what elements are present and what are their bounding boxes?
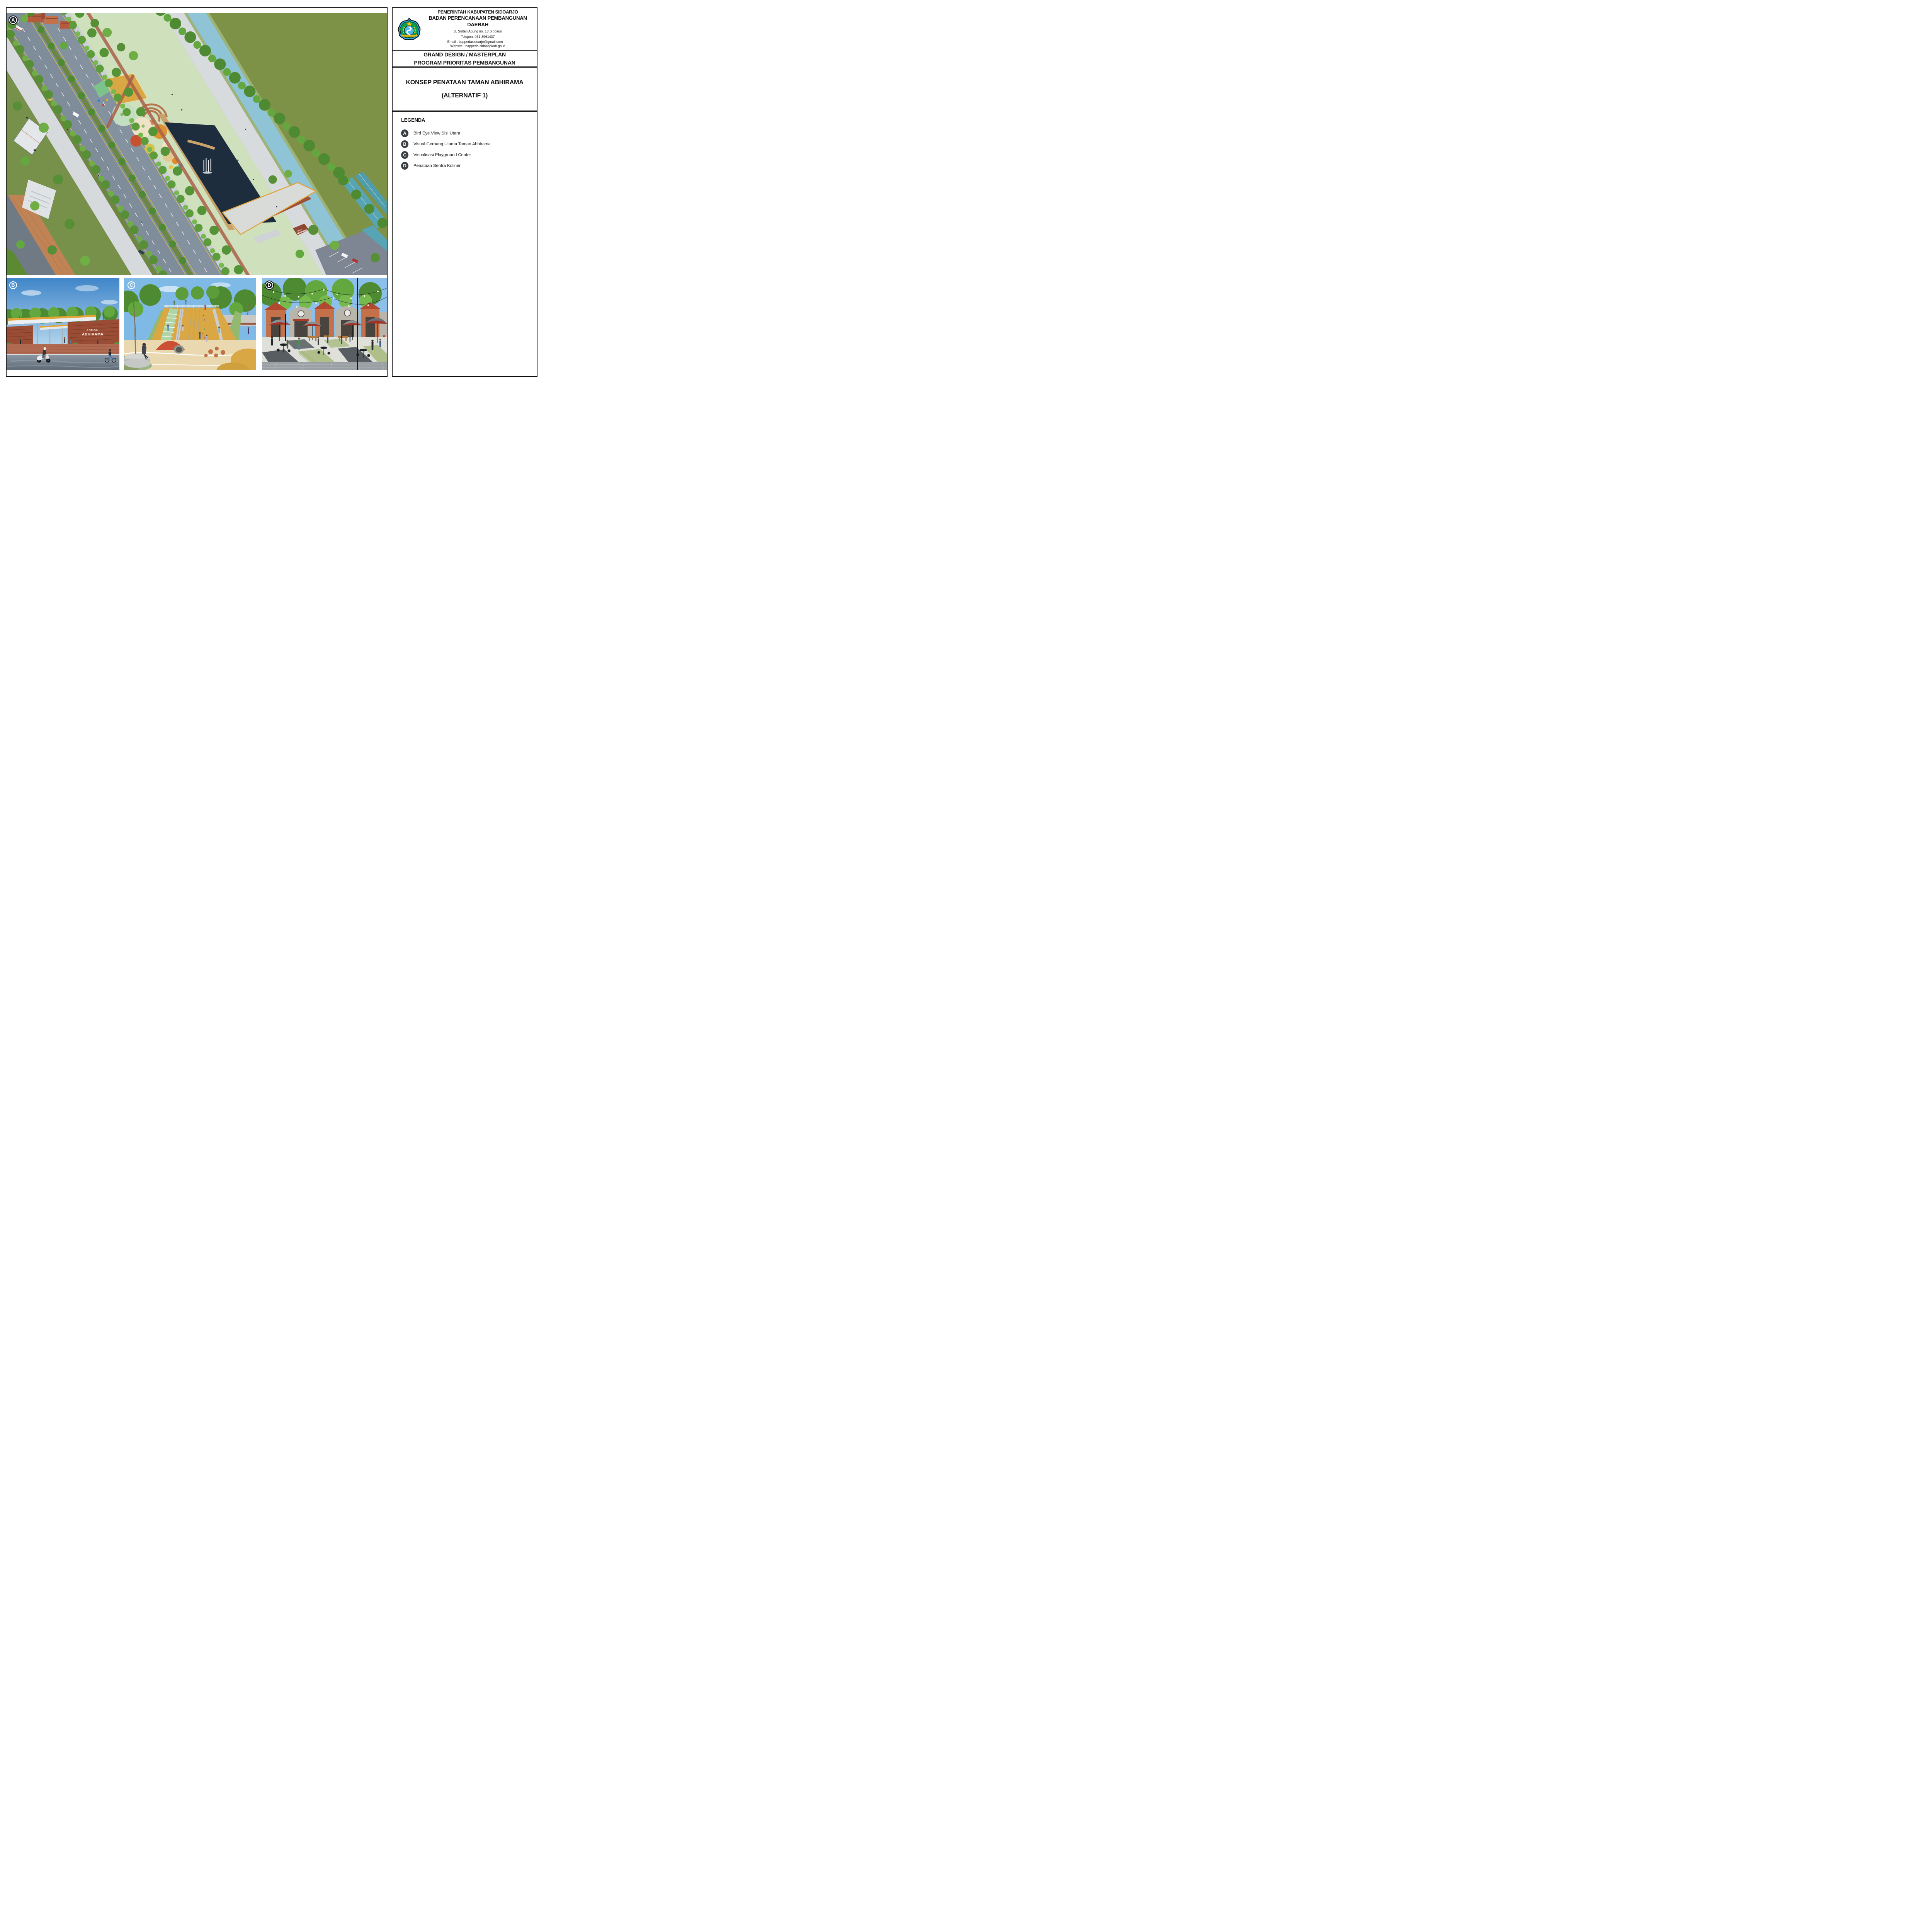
gate-scene: TAMAN ABHIRAMA bbox=[6, 278, 119, 370]
title-block: GRAND DESIGN / MASTERPLAN PROGRAM PRIORI… bbox=[393, 51, 537, 68]
legend-badge-a: A bbox=[401, 129, 408, 137]
playground-scene bbox=[124, 278, 256, 370]
agency-contact: Email : bappedasidoarjo@gmail.comWebsite… bbox=[421, 40, 534, 48]
agency-email: Email : bappedasidoarjo@gmail.com bbox=[447, 40, 503, 44]
legend: LEGENDA A Bird Eye View Sisi Utara B Vis… bbox=[393, 112, 537, 170]
sidoarjo-emblem: KABUPATEN SIDOARJO bbox=[397, 18, 421, 41]
legend-heading: LEGENDA bbox=[401, 117, 533, 123]
view-label-a: A bbox=[9, 16, 17, 24]
legend-item-c: C Visualisasi Playground Center bbox=[401, 151, 533, 159]
title-panel: KABUPATEN SIDOARJO PEMERINTAH KABUPATEN … bbox=[392, 7, 537, 377]
agency-website: Website : bappeda.sidoarjokab.go.id bbox=[450, 44, 505, 48]
render-main-gate: TAMAN ABHIRAMA bbox=[6, 278, 119, 370]
concept-block: KONSEP PENATAAN TAMAN ABHIRAMA (ALTERNAT… bbox=[393, 68, 537, 112]
legend-label-d: Penataan Sentra Kuliner bbox=[413, 163, 461, 168]
render-culinary-center: D bbox=[262, 278, 387, 370]
render-bird-eye-view: TAMAN ABHIRAMA bbox=[6, 13, 388, 275]
gate-sign-line1: TAMAN bbox=[87, 328, 99, 332]
view-label-d: D bbox=[265, 281, 273, 289]
agency-line2: BADAN PERENCANAAN PEMBANGUNAN DAERAH bbox=[421, 15, 534, 28]
agency-header: KABUPATEN SIDOARJO PEMERINTAH KABUPATEN … bbox=[393, 8, 537, 51]
render-playground: C bbox=[124, 278, 256, 370]
legend-badge-b: B bbox=[401, 140, 408, 148]
concept-line1: KONSEP PENATAAN TAMAN ABHIRAMA bbox=[393, 76, 537, 89]
concept-line2: (ALTERNATIF 1) bbox=[393, 89, 537, 102]
emblem-banner-text: KABUPATEN SIDOARJO bbox=[403, 35, 416, 37]
gate-sign-line2: ABHIRAMA bbox=[82, 332, 104, 337]
view-label-c: C bbox=[128, 281, 135, 289]
legend-badge-c: C bbox=[401, 151, 408, 159]
legend-label-b: Visual Gerbang Utama Taman Abhirama bbox=[413, 142, 491, 146]
agency-address: Jl. Sultan Agung no. 13 Sidoarjo bbox=[421, 29, 534, 34]
view-label-b: B bbox=[9, 281, 17, 289]
lamp-post bbox=[357, 278, 358, 370]
legend-item-b: B Visual Gerbang Utama Taman Abhirama bbox=[401, 140, 533, 148]
title-line1: GRAND DESIGN / MASTERPLAN bbox=[393, 51, 537, 58]
agency-phone: Telepon. 031-8961437 bbox=[421, 34, 534, 40]
presentation-sheet: TAMAN ABHIRAMA bbox=[0, 0, 542, 383]
title-line2: PROGRAM PRIORITAS PEMBANGUNAN bbox=[393, 59, 537, 66]
legend-item-a: A Bird Eye View Sisi Utara bbox=[401, 129, 533, 137]
bird-eye-scene: TAMAN ABHIRAMA bbox=[6, 13, 388, 275]
legend-item-d: D Penataan Sentra Kuliner bbox=[401, 162, 533, 170]
legend-label-c: Visualisasi Playground Center bbox=[413, 153, 471, 157]
culinary-scene bbox=[262, 278, 387, 370]
agency-line1: PEMERINTAH KABUPATEN SIDOARJO bbox=[421, 10, 534, 15]
kiosks bbox=[264, 301, 387, 338]
legend-badge-d: D bbox=[401, 162, 408, 170]
legend-label-a: Bird Eye View Sisi Utara bbox=[413, 131, 460, 136]
